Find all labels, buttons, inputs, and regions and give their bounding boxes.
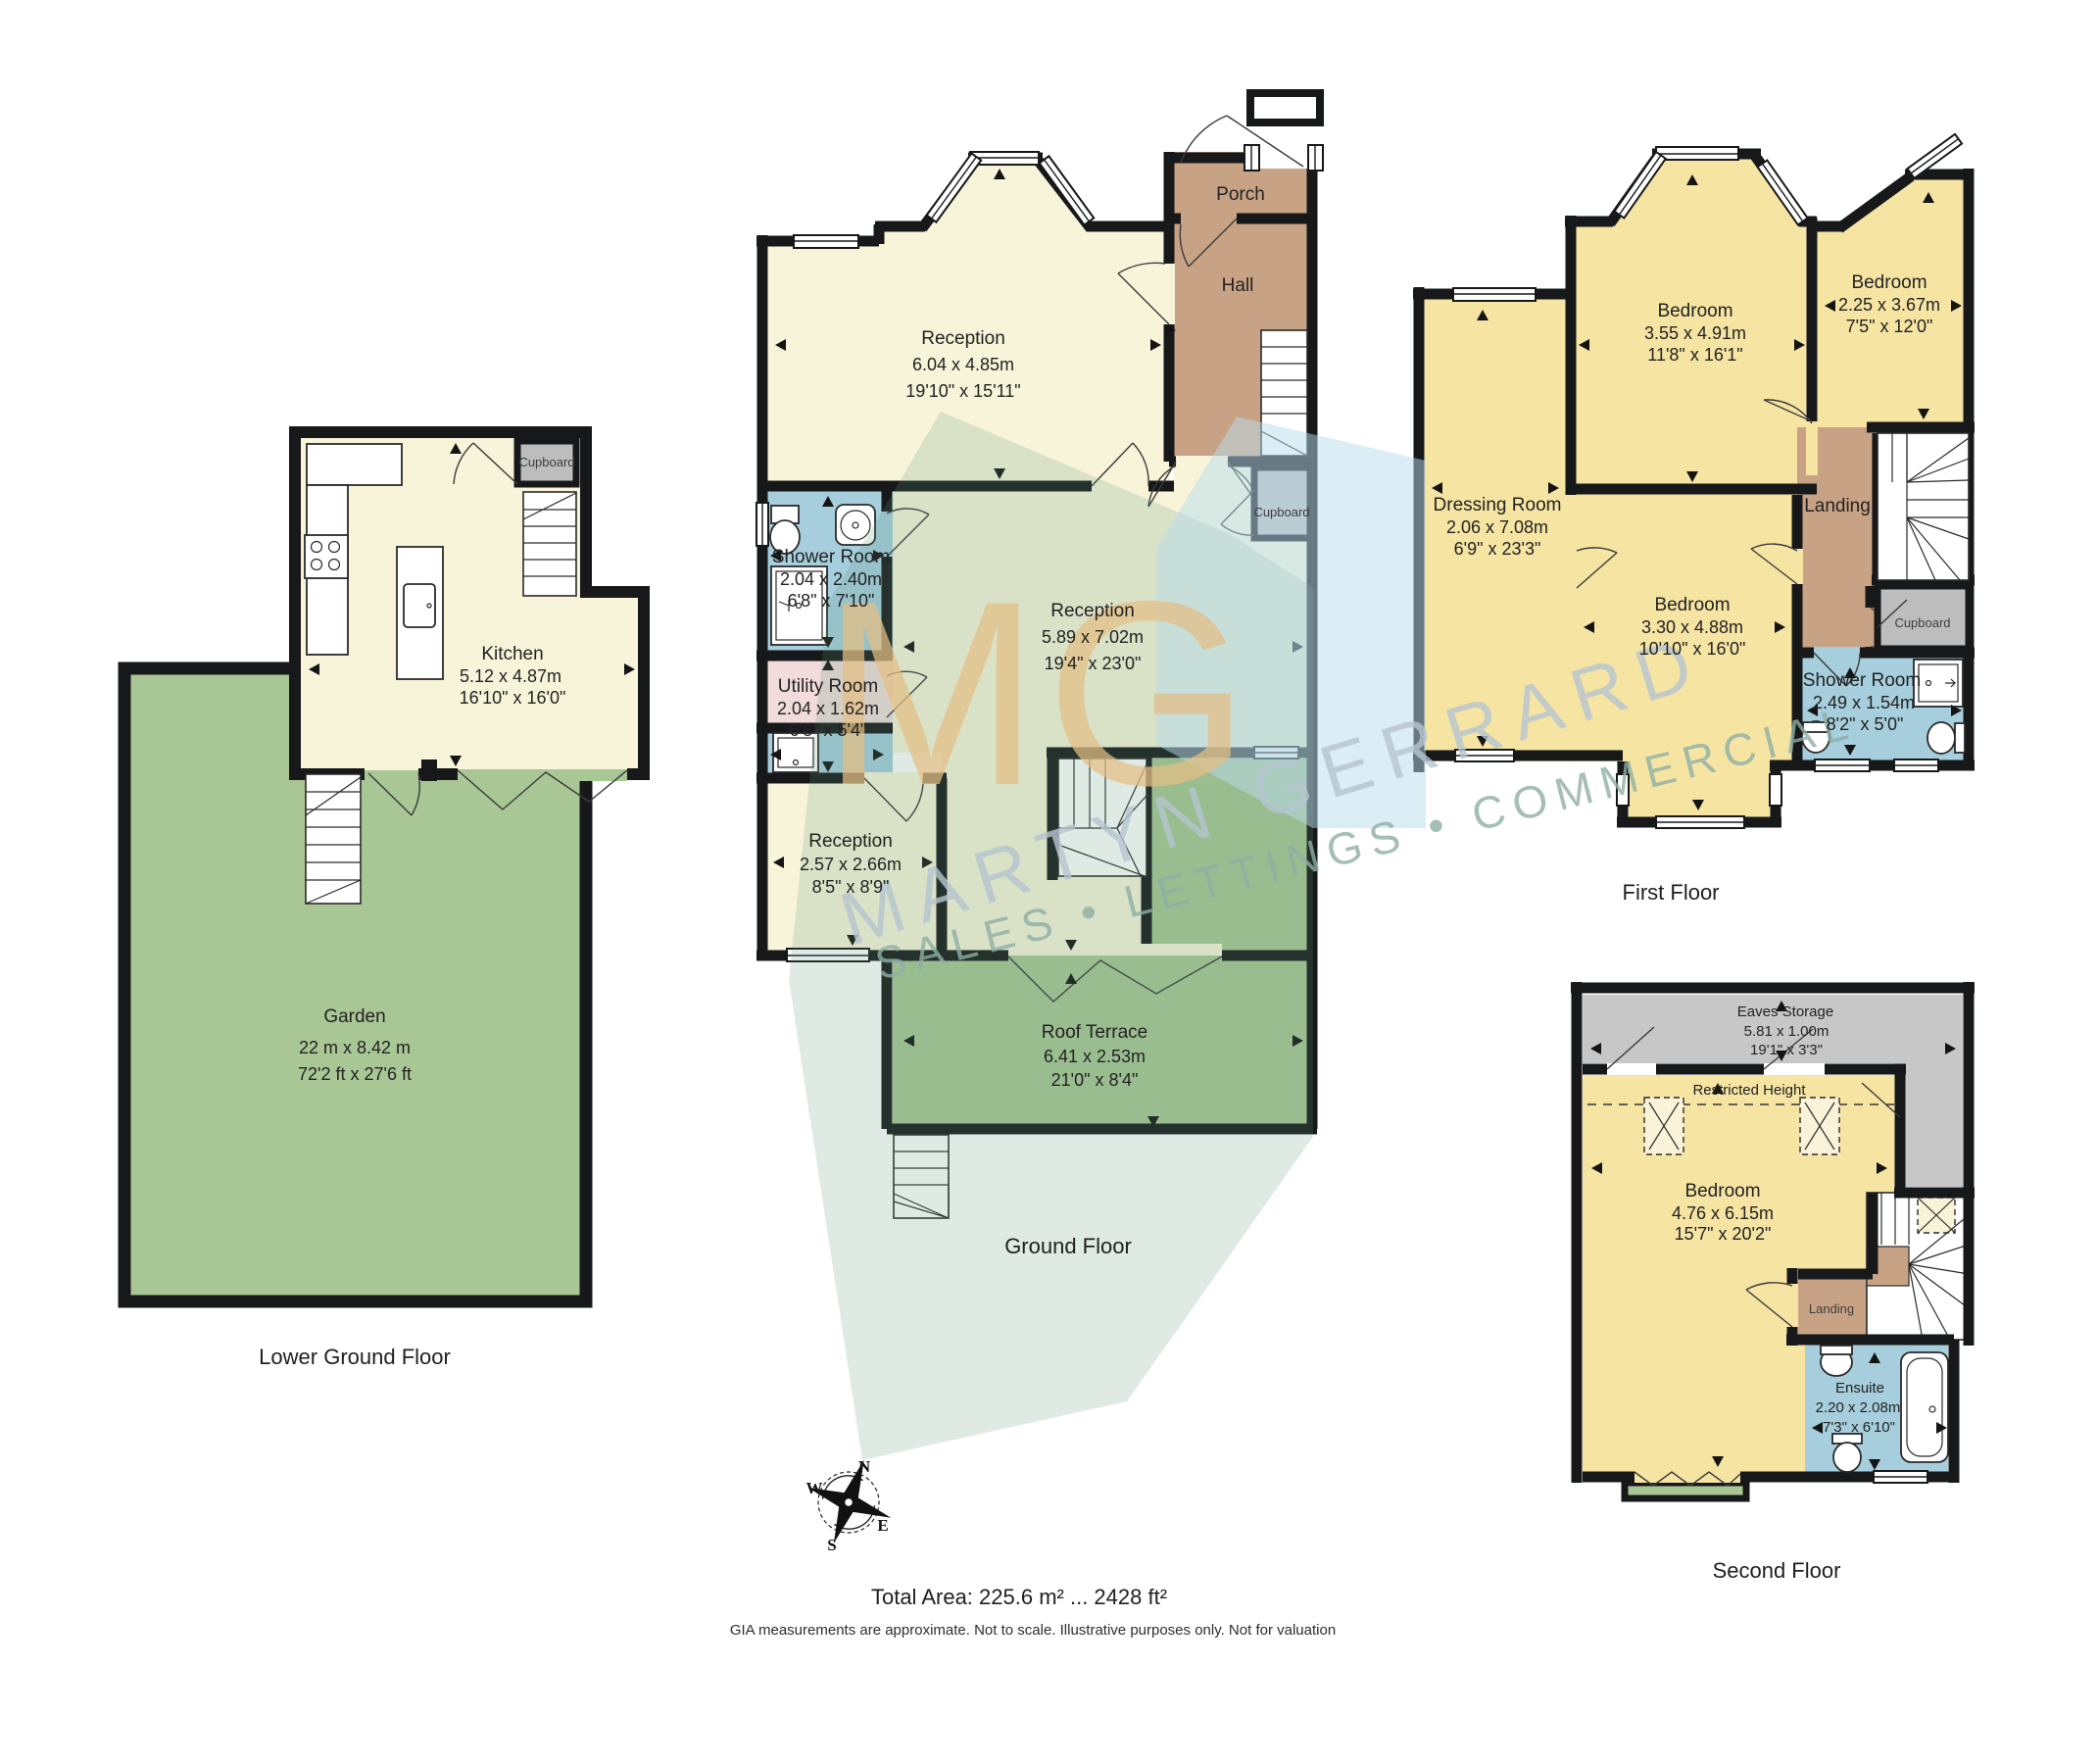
porch-label: Porch bbox=[1216, 184, 1265, 205]
sf-eaves-metric: 5.81 x 1.00m bbox=[1744, 1023, 1830, 1040]
sf-ensuite-imperial: 7'3" x 6'10" bbox=[1823, 1419, 1895, 1436]
garden-metric: 22 m x 8.42 m bbox=[299, 1038, 411, 1057]
sf-stairs bbox=[1867, 1193, 1969, 1340]
garden-imperial: 72'2 ft x 27'6 ft bbox=[298, 1064, 412, 1084]
gf-reception-front-imperial: 19'10" x 15'11" bbox=[905, 381, 1020, 401]
second-floor-plan bbox=[1571, 982, 1975, 1498]
ff-shower-metric: 2.49 x 1.54m bbox=[1813, 693, 1915, 712]
sf-bedroom-label: Bedroom bbox=[1684, 1181, 1760, 1201]
ff-shower-imperial: 8'2" x 5'0" bbox=[1827, 714, 1904, 734]
sf-bedroom-metric: 4.76 x 6.15m bbox=[1672, 1203, 1774, 1223]
ff-bedroom-rear-metric: 3.30 x 4.88m bbox=[1641, 617, 1743, 637]
compass-east: E bbox=[877, 1516, 888, 1535]
ff-cupboard-label: Cupboard bbox=[1894, 615, 1950, 630]
ff-bedroom-rear-imperial: 10'10" x 16'0" bbox=[1639, 639, 1746, 659]
sf-balcony bbox=[1625, 1471, 1746, 1498]
kitchen-island bbox=[397, 547, 443, 679]
lgf-cupboard-label: Cupboard bbox=[518, 455, 574, 469]
gf-reception-rear-label: Reception bbox=[808, 831, 893, 852]
garden-stairs bbox=[306, 774, 361, 904]
kitchen-metric: 5.12 x 4.87m bbox=[460, 666, 561, 686]
kitchen-label: Kitchen bbox=[481, 644, 543, 664]
compass-north: N bbox=[858, 1457, 871, 1476]
gf-shower-imperial: 6'8" x 7'10" bbox=[788, 591, 875, 611]
ff-bedroom-rear-label: Bedroom bbox=[1654, 595, 1730, 615]
sf-eaves-label: Eaves Storage bbox=[1737, 1004, 1833, 1020]
gf-reception-main-metric: 5.89 x 7.02m bbox=[1042, 627, 1144, 647]
compass-south: S bbox=[827, 1536, 836, 1554]
sink bbox=[404, 584, 435, 627]
total-area-text: Total Area: 225.6 m² ... 2428 ft² bbox=[871, 1585, 1167, 1609]
gf-cupboard-label: Cupboard bbox=[1253, 505, 1309, 519]
kitchen-imperial: 16'10" x 16'0" bbox=[460, 688, 566, 708]
sf-eaves-imperial: 19'1" x 3'3" bbox=[1750, 1042, 1823, 1058]
lgf-stairs bbox=[523, 492, 576, 596]
gf-reception-front-label: Reception bbox=[921, 328, 1005, 349]
terrace-imperial: 21'0" x 8'4" bbox=[1051, 1070, 1139, 1090]
ff-bedroom-side-metric: 2.25 x 3.67m bbox=[1838, 295, 1940, 315]
ff-dressing-label: Dressing Room bbox=[1434, 495, 1562, 515]
hall-label: Hall bbox=[1222, 275, 1254, 296]
gf-shower-label: Shower Room bbox=[772, 547, 890, 567]
ff-stairs bbox=[1878, 433, 1969, 580]
sf-bedroom-imperial: 15'7" x 20'2" bbox=[1675, 1224, 1772, 1244]
gf-utility-metric: 2.04 x 1.62m bbox=[777, 699, 879, 718]
sf-floor-label: Second Floor bbox=[1713, 1558, 1841, 1583]
ff-bedroom-front-metric: 3.55 x 4.91m bbox=[1644, 323, 1746, 343]
gf-reception-rear-metric: 2.57 x 2.66m bbox=[800, 855, 902, 874]
garden-floor-at-door bbox=[365, 770, 418, 781]
ff-bedroom-side-imperial: 7'5" x 12'0" bbox=[1846, 317, 1933, 336]
compass-rose: N W E S bbox=[794, 1445, 906, 1558]
gf-reception-main-imperial: 19'4" x 23'0" bbox=[1045, 654, 1142, 673]
terrace-metric: 6.41 x 2.53m bbox=[1044, 1047, 1146, 1066]
gf-floor-label: Ground Floor bbox=[1004, 1234, 1132, 1258]
gf-utility-imperial: 6'8" x 5'4" bbox=[790, 720, 867, 740]
ff-dressing-metric: 2.06 x 7.08m bbox=[1446, 517, 1548, 537]
terrace-label: Roof Terrace bbox=[1042, 1022, 1147, 1043]
gf-reception-main-label: Reception bbox=[1050, 601, 1135, 621]
bifold-gap-top bbox=[458, 758, 627, 769]
floorplan-canvas: MG MARTYN GERRARD SALES • LETTINGS • COM… bbox=[0, 0, 2098, 1764]
gf-utility-label: Utility Room bbox=[778, 676, 878, 697]
ff-landing-label: Landing bbox=[1804, 496, 1871, 516]
disclaimer-text: GIA measurements are approximate. Not to… bbox=[730, 1622, 1336, 1639]
ff-bedroom-front-label: Bedroom bbox=[1657, 301, 1732, 321]
ff-floor-label: First Floor bbox=[1623, 880, 1720, 905]
sf-ensuite-metric: 2.20 x 2.08m bbox=[1816, 1399, 1901, 1416]
ff-shower-label: Shower Room bbox=[1803, 670, 1921, 691]
sf-ensuite-label: Ensuite bbox=[1835, 1380, 1884, 1396]
gf-shower-metric: 2.04 x 2.40m bbox=[780, 569, 882, 589]
ff-bedroom-front bbox=[1571, 154, 1812, 489]
gf-reception-rear-imperial: 8'5" x 8'9" bbox=[812, 877, 890, 897]
ff-dressing-imperial: 6'9" x 23'3" bbox=[1454, 539, 1541, 559]
lower-ground-floor-plan bbox=[124, 432, 644, 1301]
ff-bedroom-front-imperial: 11'8" x 16'1" bbox=[1647, 345, 1742, 365]
door-post bbox=[421, 759, 437, 781]
lgf-floor-label: Lower Ground Floor bbox=[259, 1345, 451, 1369]
garden-label: Garden bbox=[323, 1006, 385, 1027]
floorplan-page: MG MARTYN GERRARD SALES • LETTINGS • COM… bbox=[0, 0, 2098, 1764]
sf-restricted-label: Restricted Height bbox=[1692, 1082, 1806, 1099]
gf-reception-front-metric: 6.04 x 4.85m bbox=[912, 355, 1014, 374]
ff-bedroom-side-label: Bedroom bbox=[1851, 272, 1927, 293]
compass-west: W bbox=[806, 1479, 823, 1497]
sf-landing-label: Landing bbox=[1809, 1301, 1854, 1316]
hob bbox=[305, 535, 348, 578]
